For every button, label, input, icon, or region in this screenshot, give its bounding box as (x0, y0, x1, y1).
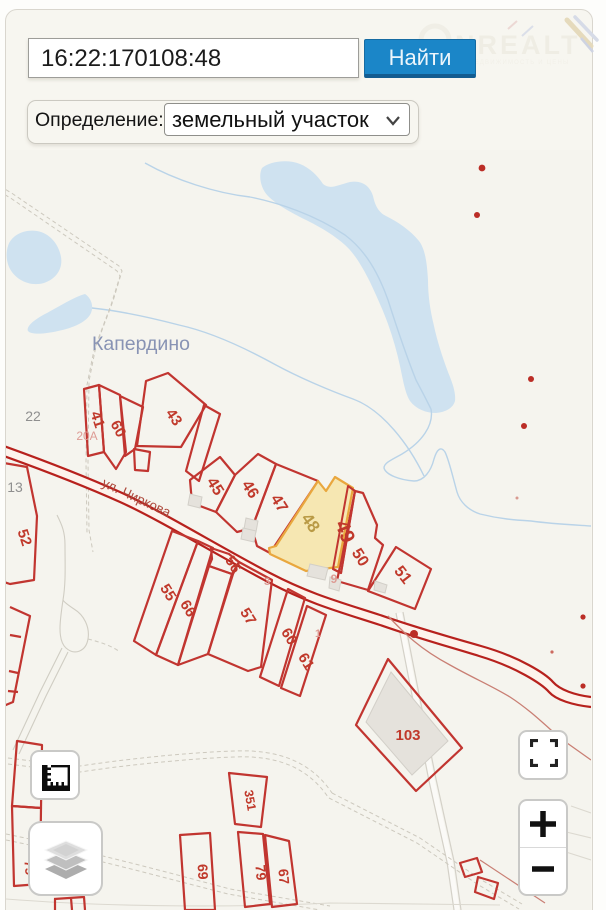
svg-text:22: 22 (25, 408, 41, 424)
svg-text:79: 79 (252, 864, 269, 881)
svg-text:103: 103 (395, 727, 420, 744)
svg-text:НЕДВИЖИМОСТЬ И ЦЕНЫ: НЕДВИЖИМОСТЬ И ЦЕНЫ (469, 60, 570, 66)
svg-text:9: 9 (331, 572, 338, 586)
svg-text:3: 3 (264, 576, 270, 588)
svg-text:1: 1 (315, 628, 321, 640)
svg-text:13: 13 (7, 479, 23, 495)
svg-text:Капердино: Капердино (92, 333, 190, 355)
svg-text:67: 67 (275, 868, 292, 885)
svg-text:69: 69 (195, 864, 212, 881)
svg-text:20А: 20А (76, 429, 97, 443)
